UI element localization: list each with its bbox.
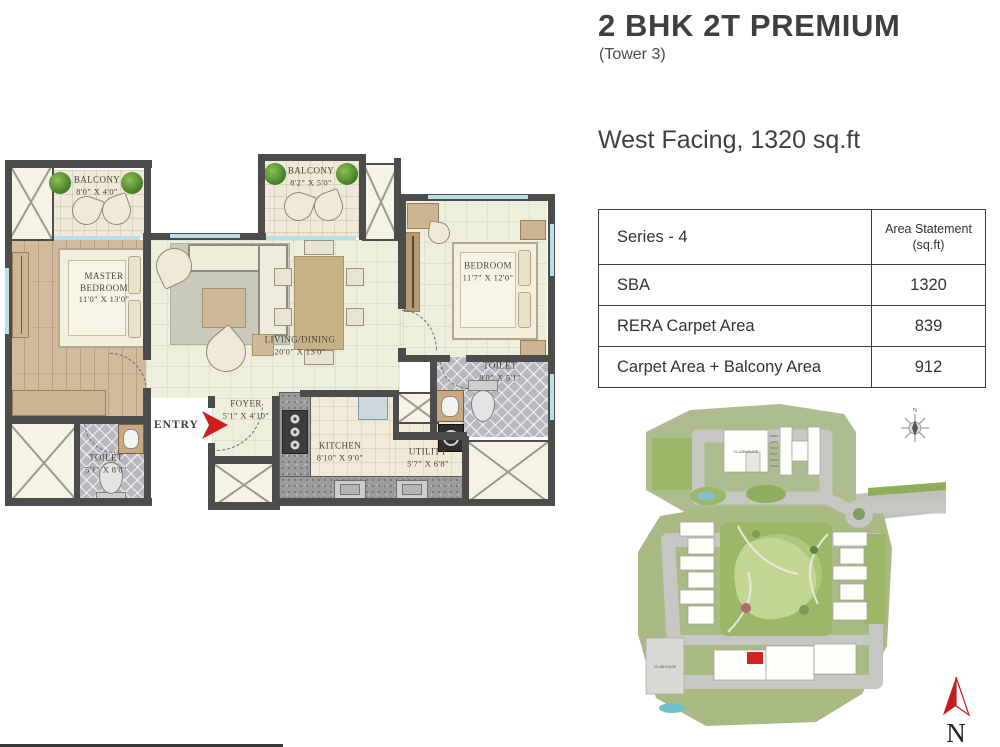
- compass-n-label: N: [913, 408, 918, 414]
- table-row-label: SBA: [599, 264, 871, 305]
- coffee-table: [202, 288, 246, 328]
- room-label-living-dining: LIVING/DINING 20'0" X 13'0": [265, 335, 336, 358]
- wall-segment: [208, 502, 280, 510]
- room-label-utility: UTILITY 5'7" X 6'8": [407, 447, 449, 470]
- room-dims: 5'1" X 8'0": [85, 464, 127, 475]
- room-name: FOYER: [223, 399, 269, 411]
- wall-segment: [462, 499, 555, 506]
- room-name: BEDROOM: [463, 261, 514, 273]
- wall-segment: [395, 432, 467, 440]
- duct-shaft: [8, 163, 54, 241]
- wall-segment: [462, 436, 469, 506]
- north-label: N: [928, 721, 984, 745]
- table-row-value: 912: [871, 346, 985, 387]
- table-row-value: 1320: [871, 264, 985, 305]
- wall-segment: [548, 436, 555, 506]
- table-row-label: Carpet Area + Balcony Area: [599, 346, 871, 387]
- kitchen-sink: [334, 480, 366, 499]
- dining-chair: [346, 268, 364, 286]
- pillow: [518, 292, 531, 328]
- window: [266, 236, 356, 240]
- duct-shaft: [8, 422, 80, 504]
- wall-segment: [300, 390, 398, 397]
- entry-arrow-icon: [201, 408, 229, 442]
- wall-segment: [208, 443, 215, 510]
- entry-marker: ENTRY: [154, 408, 229, 442]
- room-name: LIVING/DINING: [265, 335, 336, 347]
- room-dims: 8'0" X 4'0": [74, 186, 120, 197]
- wall-segment: [74, 420, 80, 502]
- wall-segment: [398, 348, 406, 362]
- brochure-page: BALCONY 8'0" X 4'0" MASTER BEDROOM 11'0"…: [0, 0, 1000, 747]
- room-label-kitchen: KITCHEN 8'10" X 9'0": [317, 441, 363, 464]
- pillow: [518, 250, 531, 286]
- site-master-plan: CLUBHOUSE CLUBHOUSE N: [628, 394, 950, 728]
- room-dims: 8'10" X 9'0": [317, 452, 363, 463]
- plant-icon: [121, 172, 143, 194]
- hob-icon: [282, 410, 308, 454]
- wall-segment: [208, 396, 215, 408]
- room-dims: 8'2" X 5'0": [288, 177, 334, 188]
- shaft-cross-icon: [10, 165, 52, 239]
- north-indicator: N: [928, 676, 984, 746]
- washbasin: [436, 390, 464, 422]
- plant-icon: [336, 163, 358, 185]
- room-dims: 5'1" X 4'10": [223, 410, 269, 421]
- table-header-area-statement: Area Statement (sq.ft): [871, 210, 985, 264]
- window: [5, 268, 9, 334]
- window: [550, 224, 554, 276]
- duct-shaft: [466, 440, 550, 504]
- wall-segment: [398, 197, 406, 309]
- wall-segment: [272, 396, 279, 502]
- plant-icon: [49, 172, 71, 194]
- dining-chair: [304, 240, 334, 255]
- highlighted-tower-marker: [747, 652, 763, 664]
- room-dims: 20'0" X 13'0": [265, 346, 336, 357]
- washbasin: [118, 424, 144, 454]
- room-name: KITCHEN: [317, 441, 363, 453]
- dining-chair: [274, 308, 292, 326]
- page-subtitle: (Tower 3): [599, 46, 666, 64]
- room-label-balcony-2: BALCONY 8'2" X 5'0": [288, 166, 334, 189]
- wall-segment: [359, 154, 366, 240]
- site-map-graphic: CLUBHOUSE CLUBHOUSE N: [628, 394, 950, 728]
- table-row-value: 839: [871, 305, 985, 346]
- wall-segment: [143, 233, 151, 360]
- wall-segment: [208, 456, 276, 463]
- clubhouse-label-top: CLUBHOUSE: [734, 449, 759, 454]
- room-dims: 11'0" X 13'0": [68, 294, 140, 305]
- wall-segment: [144, 160, 151, 240]
- room-label-master-bedroom: MASTER BEDROOM 11'0" X 13'0": [68, 271, 140, 305]
- plant-icon: [264, 163, 286, 185]
- area-statement-table: Series - 4 Area Statement (sq.ft) SBA 13…: [598, 209, 986, 388]
- room-dims: 5'7" X 6'8": [407, 458, 449, 469]
- window: [428, 195, 528, 199]
- side-table: [520, 220, 546, 240]
- shaft-cross-icon: [468, 442, 548, 502]
- dresser: [12, 390, 106, 416]
- room-dims: 8'0" X 5'1": [479, 372, 521, 383]
- room-name: TOILET: [479, 361, 521, 373]
- dining-chair: [274, 268, 292, 286]
- room-name: BALCONY: [74, 175, 120, 187]
- shaft-cross-icon: [364, 165, 398, 239]
- clubhouse-label-bottom: CLUBHOUSE: [654, 665, 677, 669]
- utility-sink: [396, 480, 428, 499]
- wardrobe: [404, 232, 420, 312]
- room-name: BALCONY: [288, 166, 334, 178]
- bed: [452, 242, 538, 340]
- shaft-cross-icon: [214, 464, 274, 506]
- room-label-bedroom: BEDROOM 11'7" X 12'0": [463, 261, 514, 284]
- compass-rose-icon: N: [901, 408, 929, 442]
- refrigerator: [358, 394, 388, 420]
- table-header-series: Series - 4: [599, 210, 871, 264]
- room-label-balcony-1: BALCONY 8'0" X 4'0": [74, 175, 120, 198]
- room-name: TOILET: [85, 453, 127, 465]
- dining-chair: [346, 308, 364, 326]
- wardrobe: [12, 252, 29, 338]
- wall-segment: [430, 355, 437, 439]
- facing-area-text: West Facing, 1320 sq.ft: [598, 126, 860, 155]
- north-arrow-icon: [939, 676, 973, 716]
- room-label-toilet-left: TOILET 5'1" X 8'0": [85, 453, 127, 476]
- window: [170, 234, 240, 238]
- window: [54, 236, 140, 240]
- room-dims: 11'7" X 12'0": [463, 272, 514, 283]
- wall-segment: [274, 498, 466, 506]
- area-statement-line2: (sq.ft): [913, 237, 945, 253]
- pillow: [128, 300, 141, 338]
- table-row-label: RERA Carpet Area: [599, 305, 871, 346]
- wall-segment: [258, 154, 366, 161]
- entry-label: ENTRY: [154, 419, 199, 431]
- window: [550, 374, 554, 420]
- room-label-toilet-right: TOILET 8'0" X 5'1": [479, 361, 521, 384]
- room-label-foyer: FOYER 5'1" X 4'10": [223, 399, 269, 422]
- shaft-cross-icon: [10, 424, 78, 502]
- room-name: UTILITY: [407, 447, 449, 459]
- page-title: 2 BHK 2T PREMIUM: [598, 8, 900, 44]
- area-statement-line1: Area Statement: [885, 221, 972, 237]
- room-name: MASTER BEDROOM: [68, 271, 140, 294]
- wall-segment: [258, 154, 265, 240]
- wall-segment: [5, 160, 152, 168]
